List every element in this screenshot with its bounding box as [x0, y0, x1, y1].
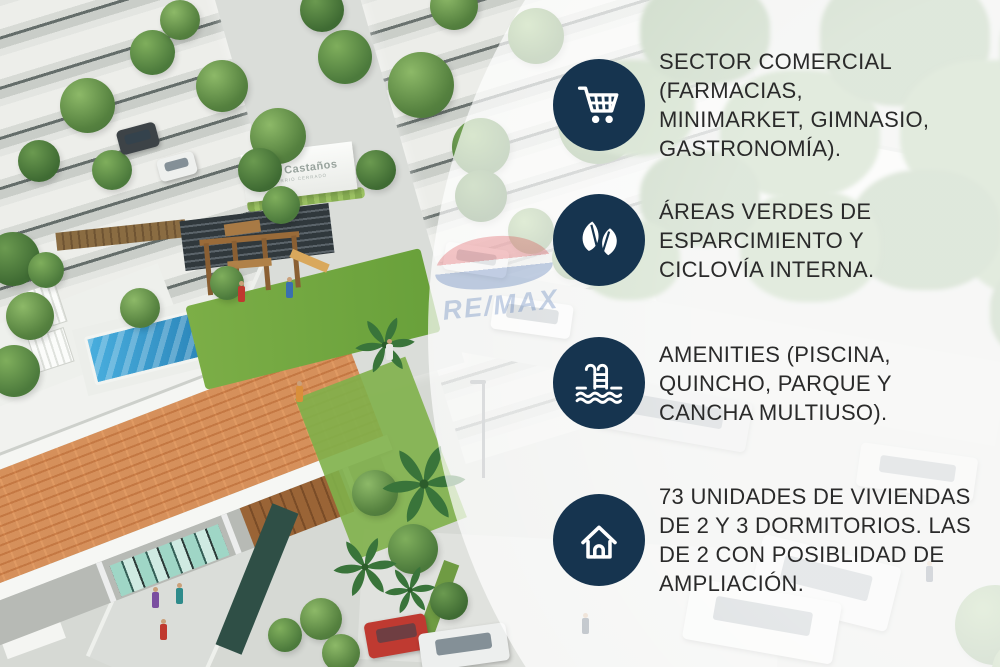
feature-text: AMENITIES (PISCINA, QUINCHO, PARQUE Y CA… [659, 340, 892, 427]
feature-list: SECTOR COMERCIAL (FARMACIAS, MINIMARKET,… [0, 0, 1000, 667]
feature-text: ÁREAS VERDES DE ESPARCIMIENTO Y CICLOVÍA… [659, 197, 874, 284]
feature-sector-comercial: SECTOR COMERCIAL (FARMACIAS, MINIMARKET,… [553, 47, 1000, 163]
shopping-cart-icon [553, 59, 645, 151]
house-icon [553, 494, 645, 586]
pool-ladder-icon [553, 337, 645, 429]
feature-text: SECTOR COMERCIAL (FARMACIAS, MINIMARKET,… [659, 47, 929, 163]
feature-amenities: AMENITIES (PISCINA, QUINCHO, PARQUE Y CA… [553, 337, 1000, 429]
feature-unidades: 73 UNIDADES DE VIVIENDAS DE 2 Y 3 DORMIT… [553, 482, 1000, 598]
leaves-icon [553, 194, 645, 286]
flyer-canvas: Los Castaños BARRIO CERRADO RE/MAX [0, 0, 1000, 667]
feature-areas-verdes: ÁREAS VERDES DE ESPARCIMIENTO Y CICLOVÍA… [553, 194, 1000, 286]
feature-text: 73 UNIDADES DE VIVIENDAS DE 2 Y 3 DORMIT… [659, 482, 971, 598]
